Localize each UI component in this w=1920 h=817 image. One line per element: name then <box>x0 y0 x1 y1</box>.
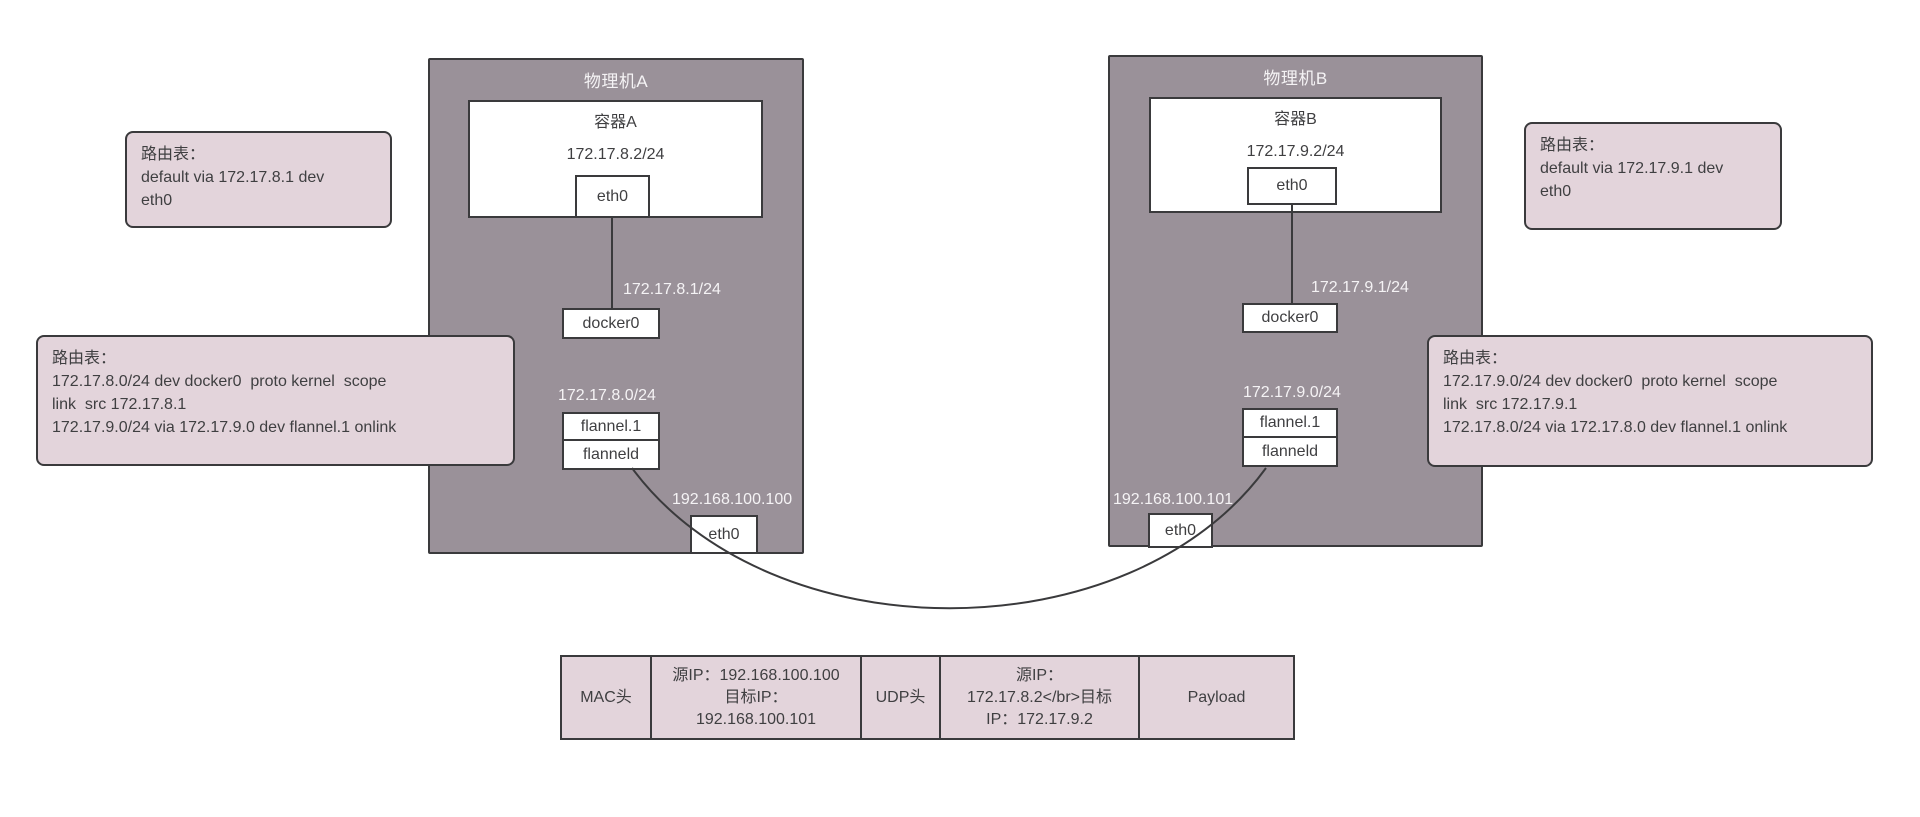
container-a-title: 容器A <box>470 102 761 132</box>
machine-b-host-ip: 192.168.100.101 <box>1113 491 1233 509</box>
machine-a-title: 物理机A <box>430 60 802 92</box>
flannel-vxlan-diagram: 物理机A 物理机B 容器A 172.17.8.2/24 eth0 容器B 172… <box>0 0 1920 817</box>
machine-a-flannel-subnet: 172.17.8.0/24 <box>558 387 656 405</box>
packet-cell-outer-ip: 源IP：192.168.100.100 目标IP： 192.168.100.10… <box>650 655 862 740</box>
route-table-container-a: 路由表： default via 172.17.8.1 dev eth0 <box>125 131 392 228</box>
packet-cell-inner-ip: 源IP： 172.17.8.2</br>目标 IP：172.17.9.2 <box>939 655 1140 740</box>
route-table-host-a: 路由表： 172.17.8.0/24 dev docker0 proto ker… <box>36 335 515 466</box>
machine-b-title: 物理机B <box>1110 57 1481 89</box>
packet-cell-mac-header: MAC头 <box>560 655 652 740</box>
machine-a-flannel1: flannel.1 <box>562 412 660 441</box>
container-b-eth0: eth0 <box>1247 167 1337 205</box>
machine-a-flanneld: flanneld <box>562 439 660 470</box>
machine-a-docker0-ip: 172.17.8.1/24 <box>623 281 721 299</box>
machine-b-docker0: docker0 <box>1242 303 1338 333</box>
container-b-ip: 172.17.9.2/24 <box>1151 143 1440 161</box>
machine-b-flannel-subnet: 172.17.9.0/24 <box>1243 384 1341 402</box>
machine-b-docker0-ip: 172.17.9.1/24 <box>1311 279 1409 297</box>
container-b-title: 容器B <box>1151 99 1440 129</box>
route-table-container-b: 路由表： default via 172.17.9.1 dev eth0 <box>1524 122 1782 230</box>
machine-b-host-eth0: eth0 <box>1148 513 1213 548</box>
machine-b-flanneld: flanneld <box>1242 436 1338 467</box>
machine-a-docker0: docker0 <box>562 308 660 339</box>
packet-cell-udp-header: UDP头 <box>860 655 941 740</box>
machine-b-flannel1: flannel.1 <box>1242 408 1338 438</box>
machine-a-host-eth0: eth0 <box>690 515 758 554</box>
route-table-host-b: 路由表： 172.17.9.0/24 dev docker0 proto ker… <box>1427 335 1873 467</box>
machine-a-host-ip: 192.168.100.100 <box>672 491 792 509</box>
container-a-eth0: eth0 <box>575 175 650 218</box>
packet-cell-payload: Payload <box>1138 655 1295 740</box>
vxlan-packet-structure: MAC头 源IP：192.168.100.100 目标IP： 192.168.1… <box>560 655 1295 740</box>
container-a-ip: 172.17.8.2/24 <box>470 146 761 164</box>
